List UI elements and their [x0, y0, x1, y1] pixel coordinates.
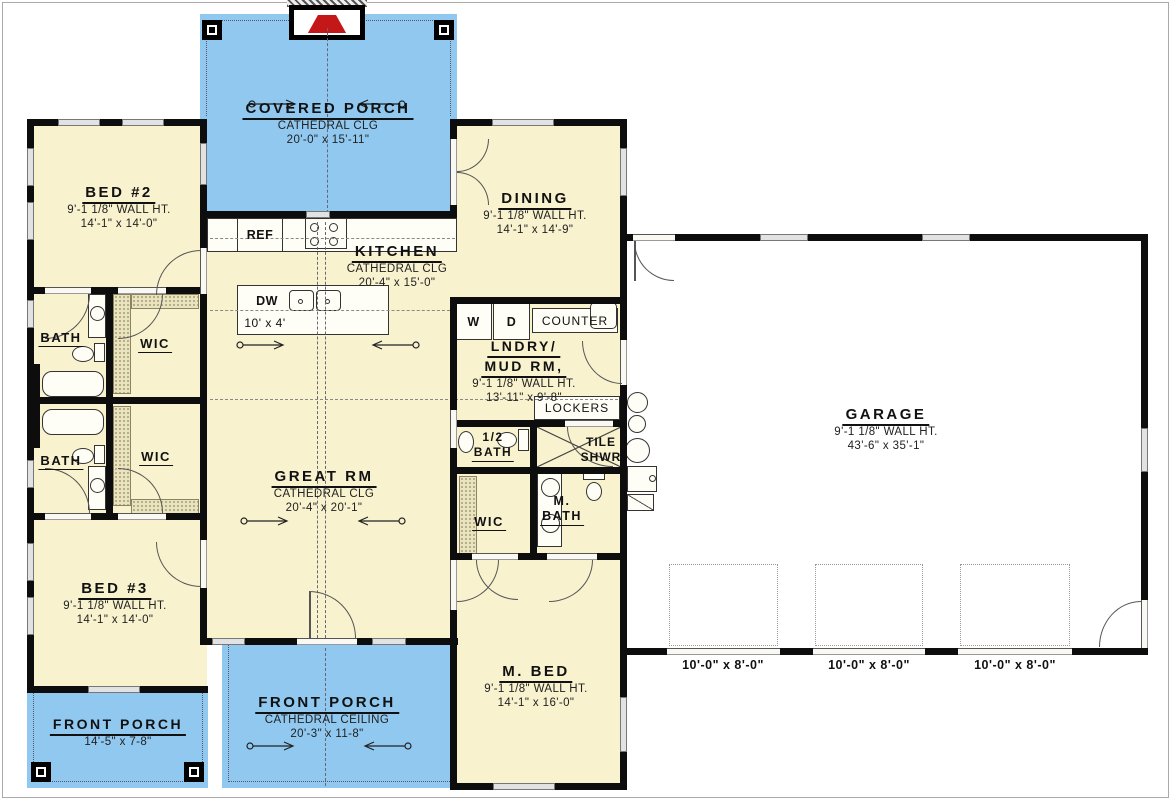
- wall: [627, 234, 1148, 241]
- room-name: BED #3: [63, 580, 166, 600]
- door-opening: [450, 560, 457, 610]
- wall: [530, 420, 537, 560]
- room-name: COVERED PORCH: [242, 100, 413, 120]
- door-opening: [450, 139, 457, 205]
- room-name: GREAT RM: [272, 468, 377, 488]
- lockers-label: LOCKERS: [534, 396, 620, 420]
- window: [922, 234, 970, 241]
- wall: [27, 364, 40, 448]
- room-dims: 14'-1" x 16'-0": [484, 697, 587, 711]
- dryer-label: D: [493, 303, 530, 340]
- window: [27, 300, 34, 328]
- window: [27, 148, 34, 186]
- room-dims: 43'-6" x 35'-1": [834, 440, 937, 454]
- room-wallht: 9'-1 1/8" WALL HT.: [484, 683, 587, 697]
- room-name: 1/2: [472, 430, 514, 445]
- room-wallht: 9'-1 1/8" WALL HT.: [483, 210, 586, 224]
- window: [27, 543, 34, 581]
- room-name: BED #2: [67, 184, 170, 204]
- porch-post: [202, 20, 222, 40]
- room-name: WIC: [139, 449, 173, 466]
- room-label-bed3: BED #3 9'-1 1/8" WALL HT. 14'-1" x 14'-0…: [63, 580, 166, 627]
- toilet-tank: [518, 429, 529, 451]
- door-opening: [1141, 600, 1148, 648]
- door-opening: [118, 513, 166, 520]
- window: [200, 143, 207, 185]
- room-wallht: 9'-1 1/8" WALL HT.: [63, 600, 166, 614]
- bathtub: [42, 409, 104, 435]
- room-label-m-wic: WIC: [472, 514, 506, 531]
- furnace-knob: [649, 475, 656, 482]
- sink-dot: [298, 299, 303, 304]
- room-dims: 14'-1" x 14'-0": [67, 218, 170, 232]
- room-wallht: 9'-1 1/8" WALL HT.: [472, 378, 575, 392]
- window: [306, 211, 330, 218]
- door-opening: [667, 648, 780, 655]
- room-name: BATH: [38, 330, 83, 347]
- room-name: GARAGE: [834, 406, 937, 426]
- window: [88, 686, 140, 693]
- garage-door-panel: [960, 564, 1070, 646]
- door-opening: [472, 553, 518, 560]
- mech-unit: [627, 494, 654, 511]
- room-label-great-rm: GREAT RM CATHEDRAL CLG 20'-4" x 20'-1": [272, 468, 377, 515]
- door-leaf: [634, 241, 636, 281]
- garage-door2-dims: 10'-0" x 8'-0": [828, 658, 910, 672]
- centerline: [325, 222, 326, 638]
- room-label-half-bath: 1/2 BATH: [472, 430, 514, 462]
- window: [620, 697, 627, 752]
- door-opening: [813, 648, 925, 655]
- island-dims-label: 10' x 4': [240, 315, 290, 331]
- room-label-wic-upper: WIC: [138, 336, 172, 353]
- room-dims: 20'-4" x 20'-1": [272, 502, 377, 516]
- toilet-bowl: [586, 482, 602, 501]
- room-ceiling: CATHEDRAL CLG: [242, 120, 413, 134]
- fridge-label: REF: [237, 218, 283, 252]
- room-label-lndry: LNDRY/ MUD RM, 9'-1 1/8" WALL HT. 13'-11…: [472, 338, 575, 405]
- room-label-dining: DINING 9'-1 1/8" WALL HT. 14'-1" x 14'-9…: [483, 190, 586, 237]
- room-label-bath-upper: BATH: [38, 330, 83, 347]
- centerline: [317, 222, 318, 638]
- burner: [329, 223, 338, 232]
- room-dims: 14'-1" x 14'-9": [483, 224, 586, 238]
- room-name: FRONT PORCH: [50, 716, 186, 736]
- window: [27, 597, 34, 635]
- vault-arrow: [352, 514, 406, 526]
- window: [492, 119, 554, 126]
- room-ceiling: CATHEDRAL CLG: [347, 263, 447, 277]
- room-name: M.: [540, 494, 584, 509]
- door-leaf: [309, 592, 311, 638]
- room-name2: BATH: [540, 509, 584, 526]
- window: [1141, 428, 1148, 472]
- dishwasher-label: DW: [248, 291, 286, 311]
- door-opening: [958, 648, 1072, 655]
- room-dims: 20'-4" x 15'-0": [347, 277, 447, 291]
- room-label-bath-lower: BATH: [38, 453, 83, 470]
- door-opening: [200, 540, 207, 588]
- room-label-kitchen: KITCHEN CATHEDRAL CLG 20'-4" x 15'-0": [347, 243, 447, 290]
- toilet-tank: [94, 445, 105, 464]
- mech-tank: [627, 392, 648, 413]
- room-dims: 20'-0" x 15'-11": [242, 134, 413, 148]
- sink: [90, 306, 105, 321]
- room-name2: SHWR: [581, 450, 622, 465]
- window: [372, 638, 406, 645]
- porch-post: [31, 762, 51, 782]
- room-name: FRONT PORCH: [255, 694, 399, 714]
- washer-label: W: [455, 303, 492, 340]
- vault-arrow: [236, 338, 290, 350]
- room-name: DINING: [483, 190, 586, 210]
- room-label-m-bed: M. BED 9'-1 1/8" WALL HT. 14'-1" x 16'-0…: [484, 663, 587, 710]
- garage-door1-dims: 10'-0" x 8'-0": [682, 658, 764, 672]
- room-name: WIC: [138, 336, 172, 353]
- room-name: KITCHEN: [347, 243, 447, 263]
- room-wallht: 9'-1 1/8" WALL HT.: [834, 426, 937, 440]
- garage-door-panel: [815, 564, 923, 646]
- room-name: WIC: [472, 514, 506, 531]
- door-opening: [547, 553, 597, 560]
- wall: [106, 404, 113, 520]
- room-dims: 20'-3" x 11-8": [255, 728, 399, 742]
- garage-door3-dims: 10'-0" x 8'-0": [974, 658, 1056, 672]
- wall: [27, 119, 207, 126]
- room-label-m-bath: M. BATH: [540, 494, 584, 526]
- room-label-front-porch-left: FRONT PORCH 14'-5" x 7-8": [50, 716, 186, 750]
- room-label-front-porch-center: FRONT PORCH CATHEDRAL CEILING 20'-3" x 1…: [255, 694, 399, 741]
- door-opening: [297, 638, 357, 645]
- vault-arrow: [240, 514, 294, 526]
- window: [58, 119, 100, 126]
- room-dims: 14'-1" x 14'-0": [63, 614, 166, 628]
- window: [27, 202, 34, 240]
- room-dims: 14'-5" x 7-8": [50, 736, 186, 750]
- window: [493, 783, 555, 790]
- room-wallht: 9'-1 1/8" WALL HT.: [67, 204, 170, 218]
- vault-arrow: [366, 338, 420, 350]
- porch-post: [434, 20, 454, 40]
- room-label-covered-porch: COVERED PORCH CATHEDRAL CLG 20'-0" x 15'…: [242, 100, 413, 147]
- window: [620, 148, 627, 196]
- wall: [27, 397, 207, 404]
- door-opening: [633, 234, 675, 241]
- window: [122, 119, 164, 126]
- room-label-wic-lower: WIC: [139, 449, 173, 466]
- window: [27, 460, 34, 488]
- water-heater: [625, 438, 650, 463]
- toilet-bowl: [72, 346, 94, 362]
- room-name: TILE: [581, 435, 622, 450]
- garage-door-panel: [669, 564, 778, 646]
- room-name2: BATH: [472, 445, 514, 462]
- wall: [450, 467, 627, 474]
- wall: [106, 287, 113, 404]
- counter-label: COUNTER: [532, 308, 618, 333]
- floor-plan: COVERED PORCH CATHEDRAL CLG 20'-0" x 15'…: [0, 0, 1171, 800]
- window: [212, 638, 245, 645]
- room-ceiling: CATHEDRAL CLG: [272, 488, 377, 502]
- door-opening: [450, 410, 457, 448]
- mech-tank: [628, 415, 646, 433]
- room-name2: MUD RM,: [472, 358, 575, 378]
- bathtub: [42, 371, 104, 397]
- window: [760, 234, 808, 241]
- door-opening: [45, 513, 91, 520]
- room-label-tile-shwr: TILE SHWR: [581, 435, 622, 465]
- door-opening: [45, 287, 91, 294]
- room-name: LNDRY/: [472, 338, 575, 358]
- toilet-tank: [94, 343, 105, 362]
- centerline: [210, 310, 455, 311]
- room-label-garage: GARAGE 9'-1 1/8" WALL HT. 43'-6" x 35'-1…: [834, 406, 937, 453]
- sink: [90, 478, 105, 493]
- wall: [450, 645, 457, 788]
- room-ceiling: CATHEDRAL CEILING: [255, 714, 399, 728]
- door-opening: [565, 420, 613, 427]
- room-name: BATH: [38, 453, 83, 470]
- room-label-bed2: BED #2 9'-1 1/8" WALL HT. 14'-1" x 14'-0…: [67, 184, 170, 231]
- room-name: M. BED: [484, 663, 587, 683]
- porch-post: [184, 762, 204, 782]
- door-opening: [200, 248, 207, 294]
